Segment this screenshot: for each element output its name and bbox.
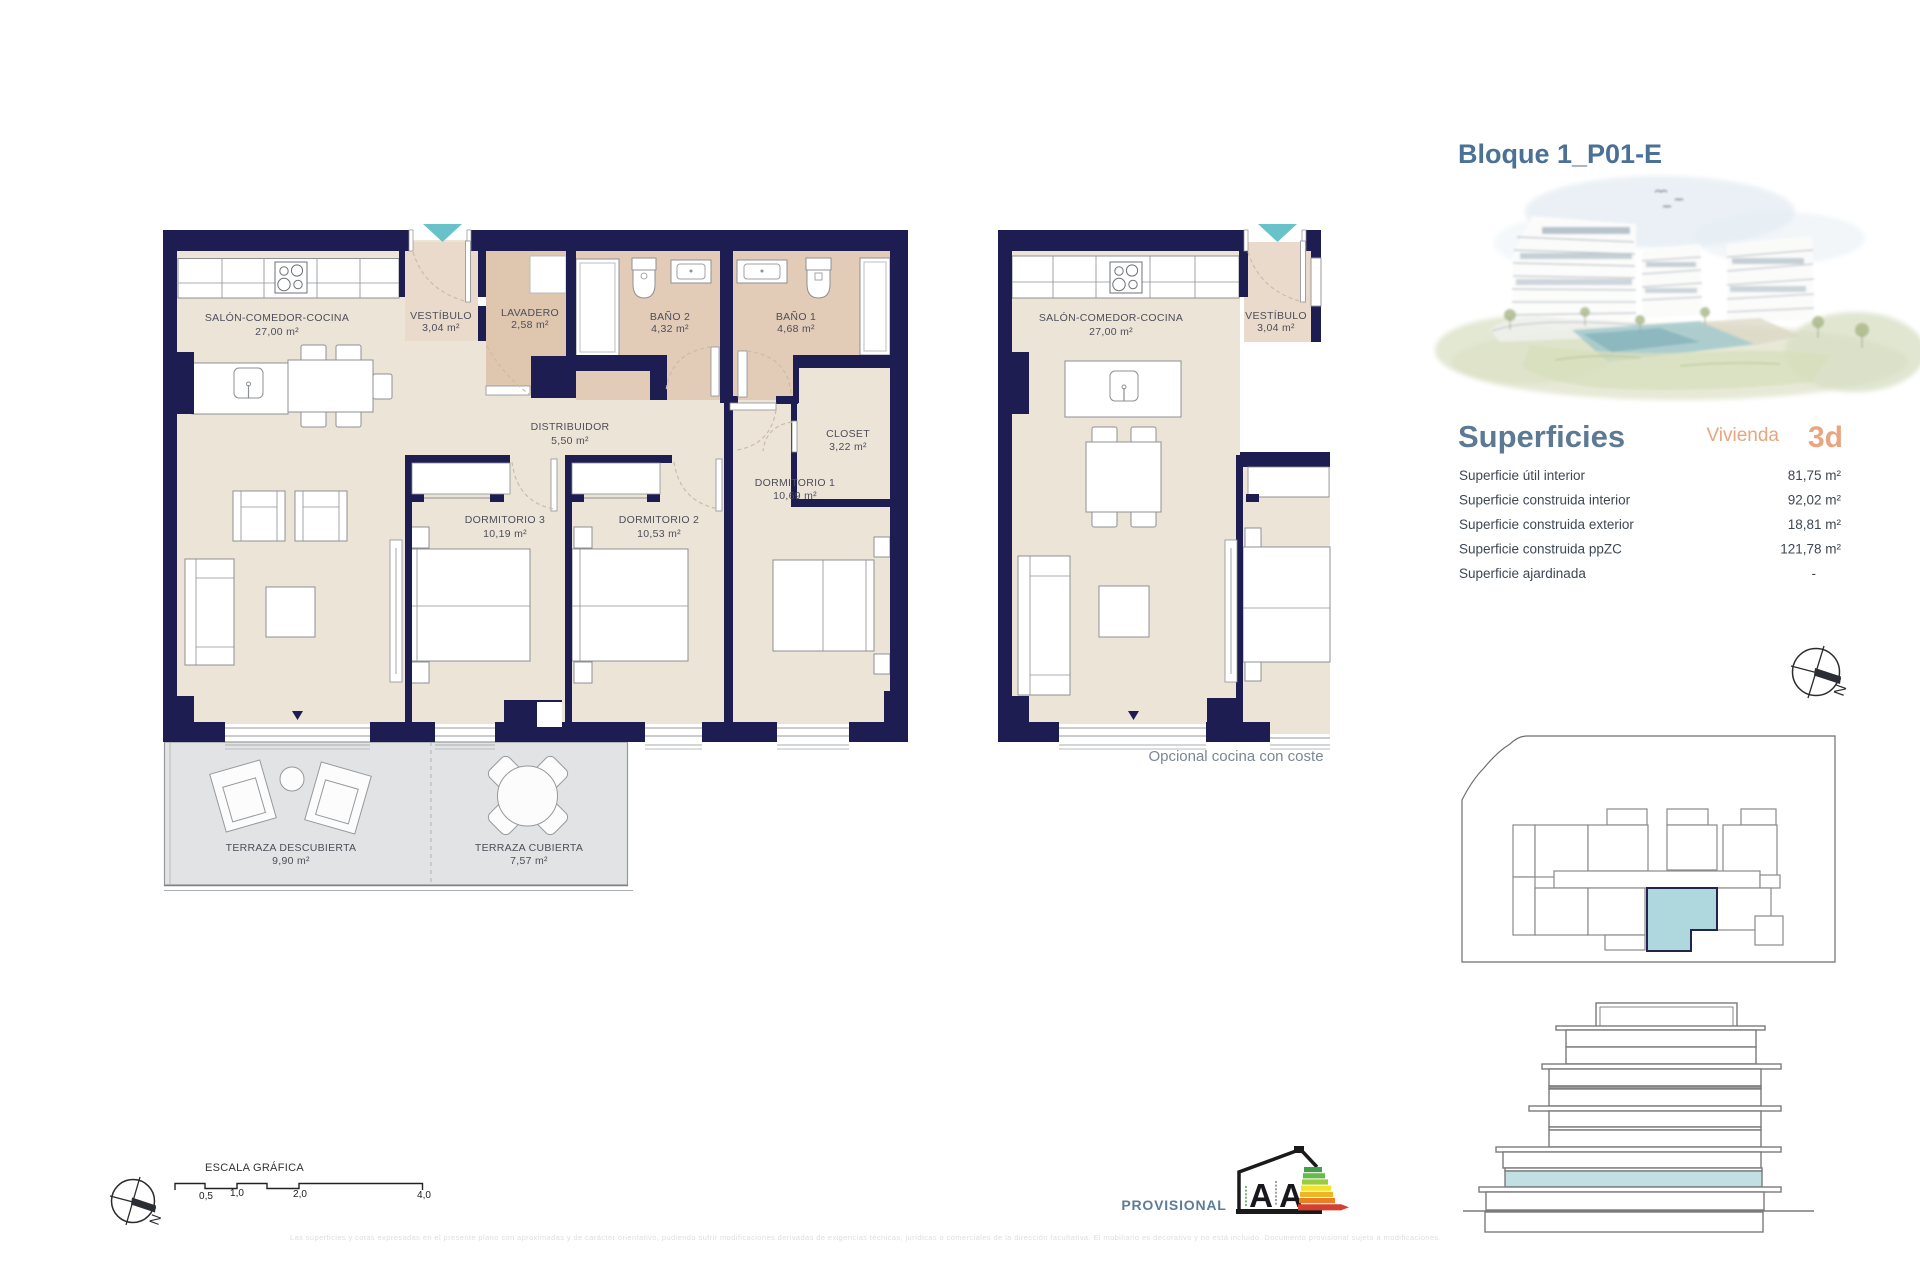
svg-text:121,78 m²: 121,78 m²	[1780, 542, 1841, 557]
svg-text:SALÓN-COMEDOR-COCINA: SALÓN-COMEDOR-COCINA	[205, 311, 349, 324]
svg-text:ESCALA GRÁFICA: ESCALA GRÁFICA	[205, 1161, 304, 1174]
svg-text:Las superficies y cotas expres: Las superficies y cotas expresadas en el…	[290, 1233, 1441, 1242]
svg-text:VESTÍBULO: VESTÍBULO	[1245, 309, 1307, 322]
svg-text:Vivienda: Vivienda	[1706, 425, 1779, 446]
svg-text:10,19 m²: 10,19 m²	[483, 528, 527, 540]
svg-text:Superficies: Superficies	[1458, 419, 1625, 454]
svg-text:PROVISIONAL: PROVISIONAL	[1121, 1197, 1226, 1213]
svg-text:LAVADERO: LAVADERO	[501, 307, 559, 319]
svg-text:4,68 m²: 4,68 m²	[777, 323, 815, 335]
svg-text:27,00 m²: 27,00 m²	[1089, 326, 1133, 338]
svg-text:Superficie construida ppZC: Superficie construida ppZC	[1459, 542, 1622, 557]
svg-text:27,00 m²: 27,00 m²	[255, 326, 299, 338]
svg-text:Opcional cocina con coste: Opcional cocina con coste	[1148, 748, 1323, 765]
svg-text:DORMITORIO 3: DORMITORIO 3	[465, 514, 545, 526]
svg-text:2,0: 2,0	[293, 1189, 307, 1200]
svg-text:3,04 m²: 3,04 m²	[422, 322, 460, 334]
svg-text:Superficie útil interior: Superficie útil interior	[1459, 468, 1586, 483]
svg-text:TERRAZA DESCUBIERTA: TERRAZA DESCUBIERTA	[226, 842, 357, 854]
svg-text:81,75 m²: 81,75 m²	[1788, 468, 1842, 483]
svg-text:BAÑO 2: BAÑO 2	[650, 310, 690, 323]
svg-text:1,0: 1,0	[230, 1188, 244, 1199]
svg-text:10,53 m²: 10,53 m²	[637, 528, 681, 540]
svg-text:3d: 3d	[1808, 421, 1843, 454]
svg-text:4,32 m²: 4,32 m²	[651, 323, 689, 335]
svg-text:3,04 m²: 3,04 m²	[1257, 322, 1295, 334]
svg-text:DORMITORIO 2: DORMITORIO 2	[619, 514, 699, 526]
svg-text:A: A	[1249, 1177, 1273, 1214]
svg-text:Bloque 1_P01-E: Bloque 1_P01-E	[1458, 139, 1662, 169]
svg-text:Superficie ajardinada: Superficie ajardinada	[1459, 566, 1586, 581]
svg-text:VESTÍBULO: VESTÍBULO	[410, 309, 472, 322]
svg-text:4,0: 4,0	[417, 1190, 431, 1201]
svg-text:5,50 m²: 5,50 m²	[551, 435, 589, 447]
svg-text:Superficie construida interior: Superficie construida interior	[1459, 493, 1631, 508]
svg-text:9,90 m²: 9,90 m²	[272, 855, 310, 867]
svg-text:SALÓN-COMEDOR-COCINA: SALÓN-COMEDOR-COCINA	[1039, 311, 1183, 324]
svg-text:0,5: 0,5	[199, 1191, 213, 1202]
svg-text:18,81 m²: 18,81 m²	[1788, 517, 1842, 532]
svg-text:DORMITORIO 1: DORMITORIO 1	[755, 477, 835, 489]
svg-text:2,58 m²: 2,58 m²	[511, 319, 549, 331]
svg-text:3,22 m²: 3,22 m²	[829, 441, 867, 453]
svg-text:BAÑO 1: BAÑO 1	[776, 310, 816, 323]
svg-text:7,57 m²: 7,57 m²	[510, 855, 548, 867]
svg-text:Superficie construida exterior: Superficie construida exterior	[1459, 517, 1634, 532]
svg-text:10,69 m²: 10,69 m²	[773, 490, 817, 502]
svg-text:CLOSET: CLOSET	[826, 428, 870, 440]
svg-text:TERRAZA CUBIERTA: TERRAZA CUBIERTA	[475, 842, 583, 854]
svg-text:92,02 m²: 92,02 m²	[1788, 493, 1842, 508]
svg-text:DISTRIBUIDOR: DISTRIBUIDOR	[531, 421, 610, 433]
svg-text:-: -	[1812, 566, 1817, 581]
